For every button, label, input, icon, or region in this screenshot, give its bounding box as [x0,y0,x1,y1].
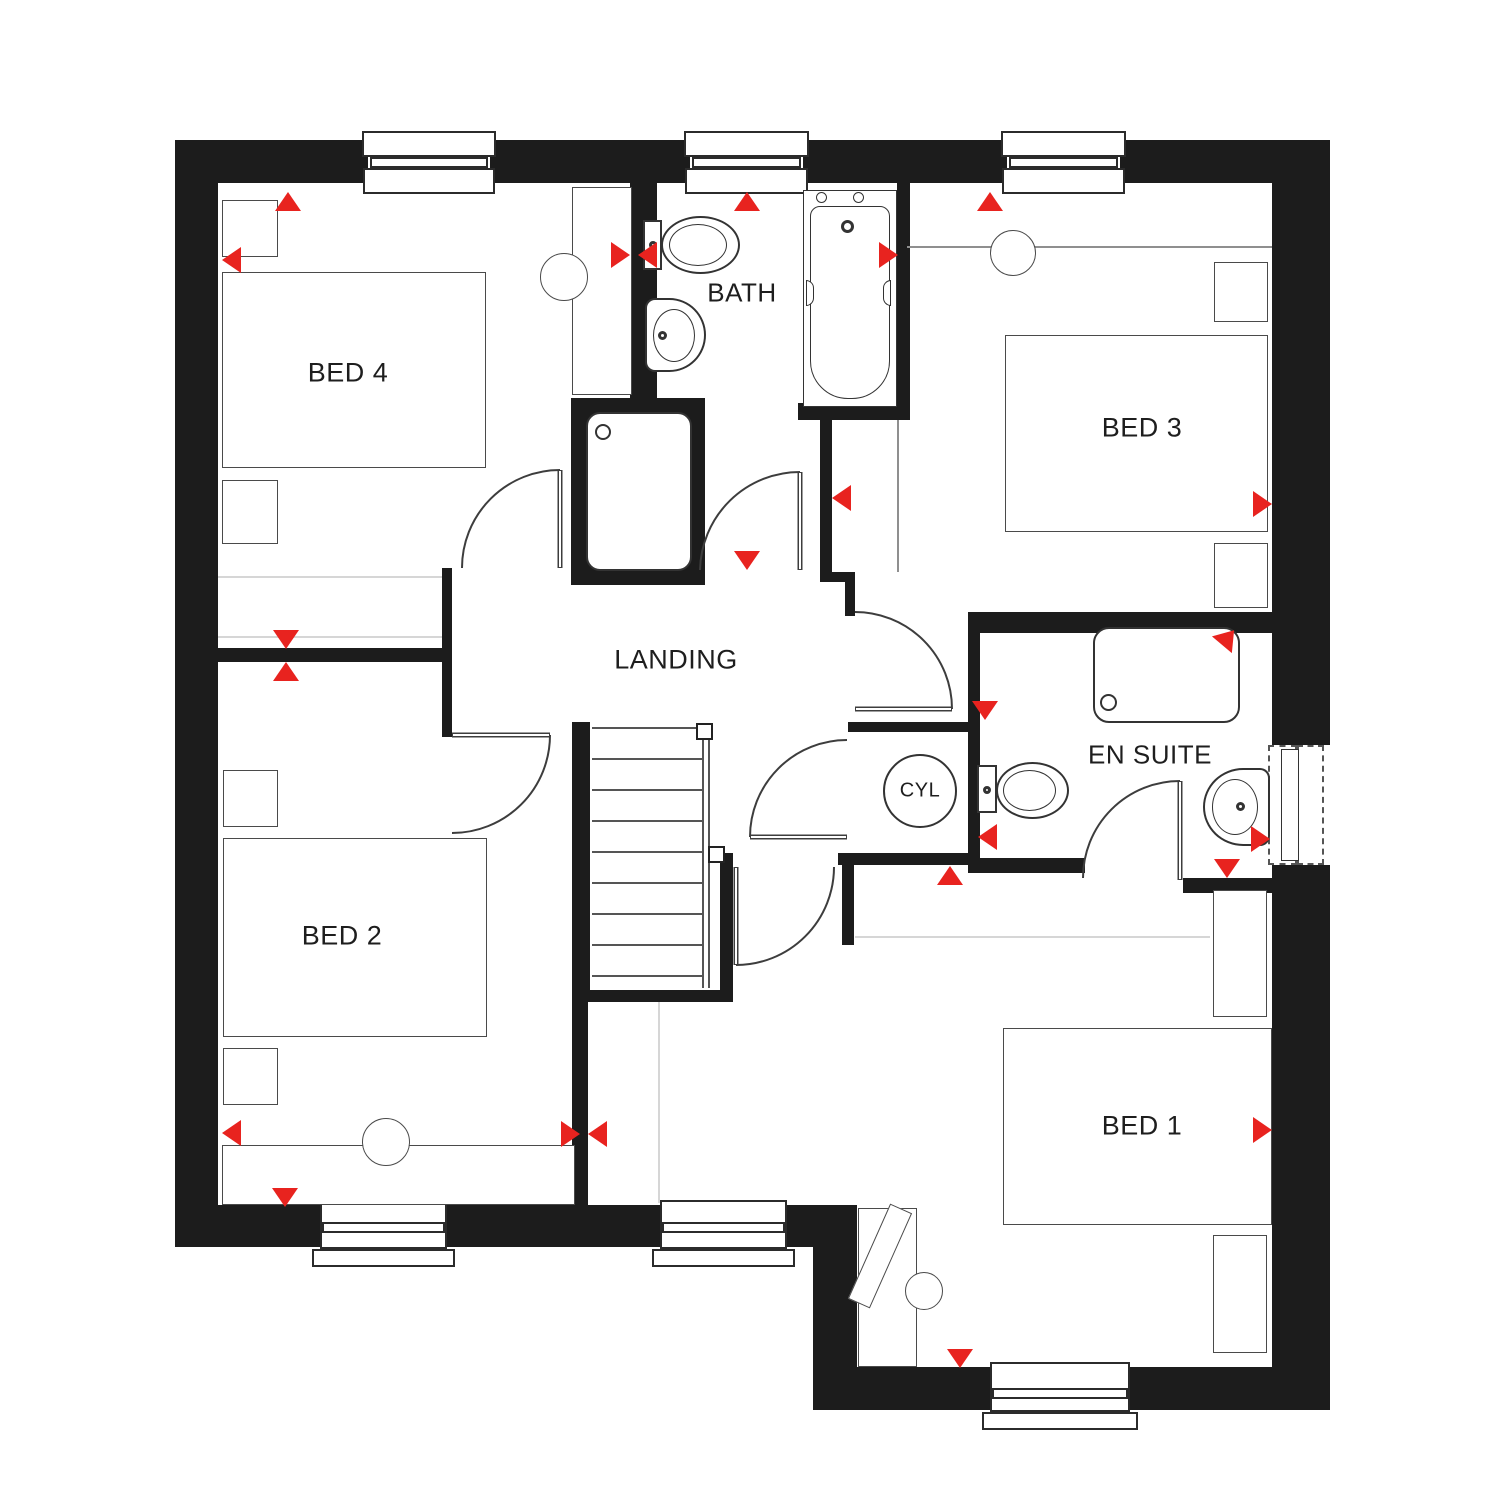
bed4-ceiling-light [540,253,588,301]
bed1-wardrobe [1213,890,1267,1017]
stair-tread [592,913,702,915]
bath-sink-tap [658,331,667,340]
wall-left [175,140,218,1247]
marker-icon [1253,491,1272,517]
bed2-ceiling-light [362,1118,410,1166]
ensuite-shower-drain [1100,694,1117,711]
wall-right [1272,865,1330,1410]
window-landing [662,1222,785,1233]
bed3-wardrobe-line [907,246,1272,248]
wall-bottom [1130,1367,1330,1410]
marker-icon [734,192,760,211]
window-bed1 [992,1388,1128,1399]
bathtub-inner [810,206,890,399]
window-bed1 [990,1362,1130,1412]
bathtub-plug [841,220,854,233]
marker-icon [978,824,997,850]
marker-icon [832,485,851,511]
stair-tread [592,758,702,760]
room-label-ensuite: EN SUITE [1088,740,1212,771]
wall-bottom [787,1205,857,1247]
marker-icon [734,551,760,570]
bed2-nightstand [223,770,278,827]
window-bed2 [312,1249,455,1267]
wall-stairwell-east [720,853,733,1002]
window-bath [685,168,808,194]
window-bed4 [362,131,496,157]
bed3-nightstand [1214,543,1268,608]
window-bed3 [1001,131,1126,157]
ensuite-toilet-seat [1003,770,1056,811]
wall-cyl-south [838,853,975,865]
wall-right [1272,140,1330,745]
marker-icon [937,866,963,885]
stair-tread [592,727,702,729]
marker-icon [561,1121,580,1147]
marker-icon [972,701,998,720]
window-bed3 [1009,157,1118,168]
marker-icon [272,1188,298,1207]
window-bed1 [982,1412,1138,1430]
wall-bed3-west [820,403,832,574]
window-landing [652,1249,795,1267]
window-bath [684,131,809,157]
wall-bed3-west [820,572,855,582]
bed4-wardrobe-line [218,576,442,578]
wall-top [803,140,1007,183]
marker-icon [1253,1117,1272,1143]
stair-rail [702,726,704,988]
room-label-bed3: BED 3 [1102,413,1183,444]
marker-icon [947,1349,973,1368]
bed3-ceiling-light [990,230,1036,276]
bed2-door-arc [452,735,550,833]
wall-bed4-bed2 [175,648,452,662]
wall-top [490,140,690,183]
marker-icon [275,192,301,211]
wall-stairs-bottom [572,990,733,1002]
wall-jog [813,1247,857,1410]
shower-drain [595,424,611,440]
bed3-alcove-line [897,420,899,572]
bathtub-handle [806,280,814,306]
wall-landing-west [442,568,452,737]
wall-stairwell-west [572,722,590,1002]
cyl-door-arc [750,740,847,837]
marker-icon [588,1121,607,1147]
wall-bed1-spur [842,865,854,945]
window-bath [692,157,801,168]
bed4-nightstand [222,480,278,544]
room-label-bed1: BED 1 [1102,1111,1183,1142]
marker-icon [611,242,630,268]
room-label-bath: BATH [707,278,776,309]
stair-tread [592,882,702,884]
wall-ensuite-south [968,858,1085,873]
ensuite-door-arc [1083,781,1180,878]
bed2-nightstand [223,1048,278,1105]
marker-icon [879,242,898,268]
stair-newel-post [696,723,713,740]
stair-tread [592,975,702,977]
bed3-nightstand [1214,262,1268,322]
marker-icon [273,662,299,681]
marker-icon [222,247,241,273]
wall-bottom [857,1367,990,1410]
window-bed2 [322,1222,445,1233]
landing-floor-line [658,1002,660,1203]
marker-icon [1251,826,1270,852]
bed4-door-arc [462,470,560,568]
stair-tread [592,851,702,853]
marker-icon [273,630,299,649]
window-bed4 [370,157,488,168]
wall-bath-east [897,183,910,420]
wall-bottom [447,1205,660,1247]
wall-cyl-north [848,722,975,732]
stair-tread [592,820,702,822]
bathtub-tap [816,192,827,203]
wall-bottom [175,1205,320,1247]
window-ensuite [1281,749,1299,861]
bed4-wardrobe-line [218,636,442,638]
room-label-landing: LANDING [614,645,738,676]
ensuite-toilet-button [983,786,991,794]
marker-icon [638,242,657,268]
window-bed4 [363,168,495,194]
stair-tread [592,789,702,791]
bed1-stool [905,1272,943,1310]
bathtub-tap [853,192,864,203]
stair-tread [592,944,702,946]
bed1-floor-line [855,936,1210,938]
stair-newel-post [708,846,725,863]
bath-toilet-seat [669,224,727,266]
room-label-cyl: CYL [900,780,940,803]
window-ensuite [1297,745,1324,865]
marker-icon [977,192,1003,211]
room-label-bed4: BED 4 [308,358,389,389]
floor-plan: BED 4 BATH BED 3 LANDING CYL EN SUITE BE… [0,0,1500,1500]
bed1-door-arc [736,867,834,965]
bed1-wardrobe [1213,1235,1267,1353]
ensuite-sink-tap [1236,802,1245,811]
bathtub-handle [883,280,891,306]
window-bed3 [1002,168,1125,194]
wall-bed3-west [845,582,855,616]
marker-icon [222,1120,241,1146]
marker-icon [1214,859,1240,878]
bed3-door-arc [855,612,952,709]
room-label-bed2: BED 2 [302,921,383,952]
